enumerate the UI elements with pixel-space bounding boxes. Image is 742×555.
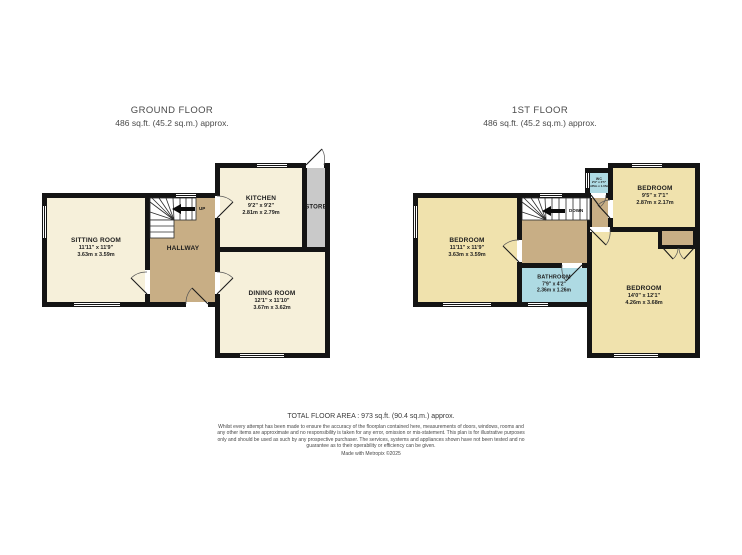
kitchen-dims-ft: 9'2" x 9'2" xyxy=(242,203,279,210)
bedroom-top-name: BEDROOM xyxy=(636,185,673,193)
dining-room-name: DINING ROOM xyxy=(249,290,296,298)
label-sitting-room: SITTING ROOM 11'11" x 11'9" 3.63m x 3.59… xyxy=(71,237,121,259)
stairs-doors-overlay xyxy=(0,0,742,555)
ground-stairs xyxy=(150,198,196,238)
label-dining-room: DINING ROOM 12'1" x 11'10" 3.67m x 3.62m xyxy=(249,290,296,312)
dining-room-dims-ft: 12'1" x 11'10" xyxy=(249,298,296,305)
bedroom-bottom-dims-ft: 14'0" x 12'1" xyxy=(625,293,662,300)
bedroom-left-name: BEDROOM xyxy=(448,237,485,245)
bedroom-top-dims-m: 2.87m x 2.17m xyxy=(636,200,673,207)
label-kitchen: KITCHEN 9'2" x 9'2" 2.81m x 2.79m xyxy=(242,195,279,217)
bedroom-left-dims-ft: 11'11" x 11'9" xyxy=(448,245,485,252)
floorplan-canvas: GROUND FLOOR 486 sq.ft. (45.2 sq.m.) app… xyxy=(0,0,742,555)
bedroom-left-dims-m: 3.63m x 3.59m xyxy=(448,252,485,259)
label-bedroom-bottom: BEDROOM 14'0" x 12'1" 4.26m x 3.68m xyxy=(625,285,662,307)
label-hallway: HALLWAY xyxy=(167,245,200,253)
bathroom-dims-m: 2.36m x 1.26m xyxy=(537,287,571,293)
wc-dims-m: 0.85m x 1.05m xyxy=(589,185,609,189)
label-bedroom-top: BEDROOM 9'5" x 7'1" 2.87m x 2.17m xyxy=(636,185,673,207)
bedroom-bottom-name: BEDROOM xyxy=(625,285,662,293)
metropix-credit: Made with Metropix ©2025 xyxy=(171,451,571,457)
label-store: STORE xyxy=(305,204,327,212)
sitting-room-name: SITTING ROOM xyxy=(71,237,121,245)
kitchen-dims-m: 2.81m x 2.79m xyxy=(242,210,279,217)
label-bedroom-left: BEDROOM 11'11" x 11'9" 3.63m x 3.59m xyxy=(448,237,485,259)
footer: TOTAL FLOOR AREA : 973 sq.ft. (90.4 sq.m… xyxy=(171,413,571,457)
label-bathroom: BATHROOM 7'9" x 4'2" 2.36m x 1.26m xyxy=(537,274,571,293)
hallway-name: HALLWAY xyxy=(167,245,200,253)
store-name: STORE xyxy=(305,204,327,212)
stairs-down-label: DOWN xyxy=(569,208,583,213)
dining-room-dims-m: 3.67m x 3.62m xyxy=(249,305,296,312)
bathroom-name: BATHROOM xyxy=(537,274,571,281)
kitchen-name: KITCHEN xyxy=(242,195,279,203)
stairs-up-label: UP xyxy=(199,206,205,211)
bedroom-bottom-dims-m: 4.26m x 3.68m xyxy=(625,300,662,307)
label-wc: WC 2'9" x 3'5" 0.85m x 1.05m xyxy=(589,177,609,189)
disclaimer-text: Whilst every attempt has been made to en… xyxy=(215,424,527,450)
bedroom-top-dims-ft: 9'5" x 7'1" xyxy=(636,193,673,200)
sitting-room-dims-ft: 11'11" x 11'9" xyxy=(71,245,121,252)
sitting-room-dims-m: 3.63m x 3.59m xyxy=(71,252,121,259)
total-floor-area: TOTAL FLOOR AREA : 973 sq.ft. (90.4 sq.m… xyxy=(171,413,571,420)
